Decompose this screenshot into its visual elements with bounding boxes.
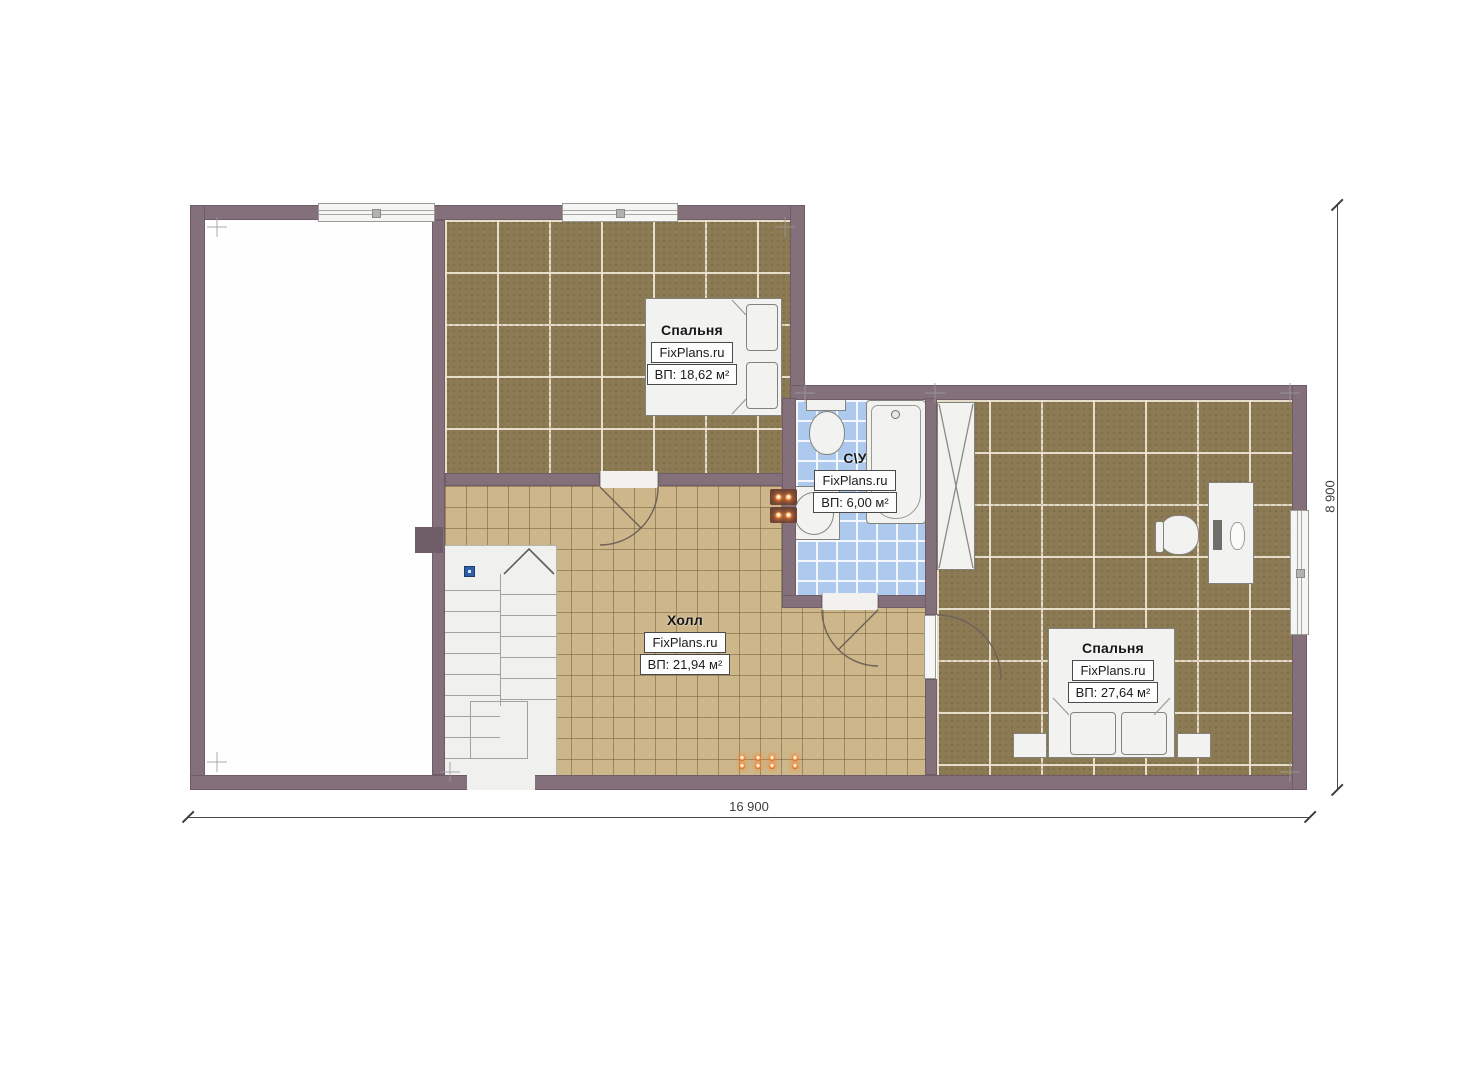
door-bathroom-threshold (822, 593, 878, 610)
toilet-icon (809, 411, 845, 455)
chair-icon (1159, 515, 1199, 555)
stairs-landing-outline (470, 701, 528, 759)
pillow-icon (1121, 712, 1167, 755)
room-brand: FixPlans.ru (651, 342, 732, 363)
room-area: ВП: 21,94 м² (640, 654, 731, 675)
void-room-floor (205, 220, 432, 775)
stairs-right-flight (500, 574, 557, 706)
radiator-icon (737, 753, 746, 771)
radiator-dot (739, 763, 745, 769)
radiator-dot (792, 755, 798, 761)
radiator-dot (755, 755, 761, 761)
room-name: Спальня (661, 322, 723, 338)
room-brand: FixPlans.ru (1072, 660, 1153, 681)
room-area: ВП: 27,64 м² (1068, 682, 1159, 703)
radiator-dot (769, 755, 775, 761)
room-label-bedroom-2: Спальня FixPlans.ru ВП: 27,64 м² (1033, 640, 1193, 703)
radiator-icon (767, 753, 776, 771)
wall-top-left-section (190, 205, 805, 220)
wall-top-right-section (790, 385, 1307, 400)
floor-plan: Спальня FixPlans.ru ВП: 18,62 м² С\У Fix… (0, 0, 1474, 1080)
wall-bathroom-south-left (782, 595, 822, 608)
room-area: ВП: 6,00 м² (813, 492, 896, 513)
stairs-wall-opening (467, 775, 535, 790)
chair-back (1155, 521, 1164, 553)
door-bedroom-2-leaf (924, 615, 936, 679)
bathtub-drain (891, 410, 900, 419)
radiator-dot (755, 763, 761, 769)
dimension-bottom-label: 16 900 (188, 799, 1310, 814)
room-name: С\У (843, 450, 866, 466)
radiator-dot (739, 755, 745, 761)
staircase (445, 545, 557, 775)
dimension-line-bottom (188, 817, 1310, 818)
room-name: Холл (667, 612, 703, 628)
room-label-bathroom: С\У FixPlans.ru ВП: 6,00 м² (775, 450, 935, 513)
monitor-icon (1213, 520, 1222, 550)
wall-void-divider (432, 220, 445, 775)
room-brand: FixPlans.ru (814, 470, 895, 491)
room-area: ВП: 18,62 м² (647, 364, 738, 385)
nightstand-icon (1177, 733, 1211, 758)
wall-bedroom1-hall-left (445, 473, 600, 486)
wall-bedroom1-hall-right (658, 473, 790, 486)
sensor-marker-icon (464, 566, 475, 577)
radiator-dot (769, 763, 775, 769)
door-bedroom-1-threshold (600, 471, 658, 488)
radiator-dot (792, 763, 798, 769)
window-mullion (372, 209, 381, 218)
wardrobe-shaft (937, 402, 975, 570)
pillow-icon (1070, 712, 1116, 755)
window-mullion (1296, 569, 1305, 578)
room-label-bedroom-1: Спальня FixPlans.ru ВП: 18,62 м² (612, 322, 772, 385)
wall-east-bedroom-1 (790, 205, 805, 400)
radiator-icon (790, 753, 799, 771)
dimension-right-label: 8 900 (1323, 467, 1338, 527)
room-label-hall: Холл FixPlans.ru ВП: 21,94 м² (605, 612, 765, 675)
window-mullion (616, 209, 625, 218)
nightstand-icon (1013, 733, 1047, 758)
radiator-icon (753, 753, 762, 771)
room-name: Спальня (1082, 640, 1144, 656)
wall-south (190, 775, 1307, 790)
chimney-pier (415, 527, 443, 553)
room-brand: FixPlans.ru (644, 632, 725, 653)
wall-west (190, 205, 205, 790)
wall-hall-bedroom2 (925, 679, 937, 775)
keyboard-icon (1230, 522, 1245, 550)
